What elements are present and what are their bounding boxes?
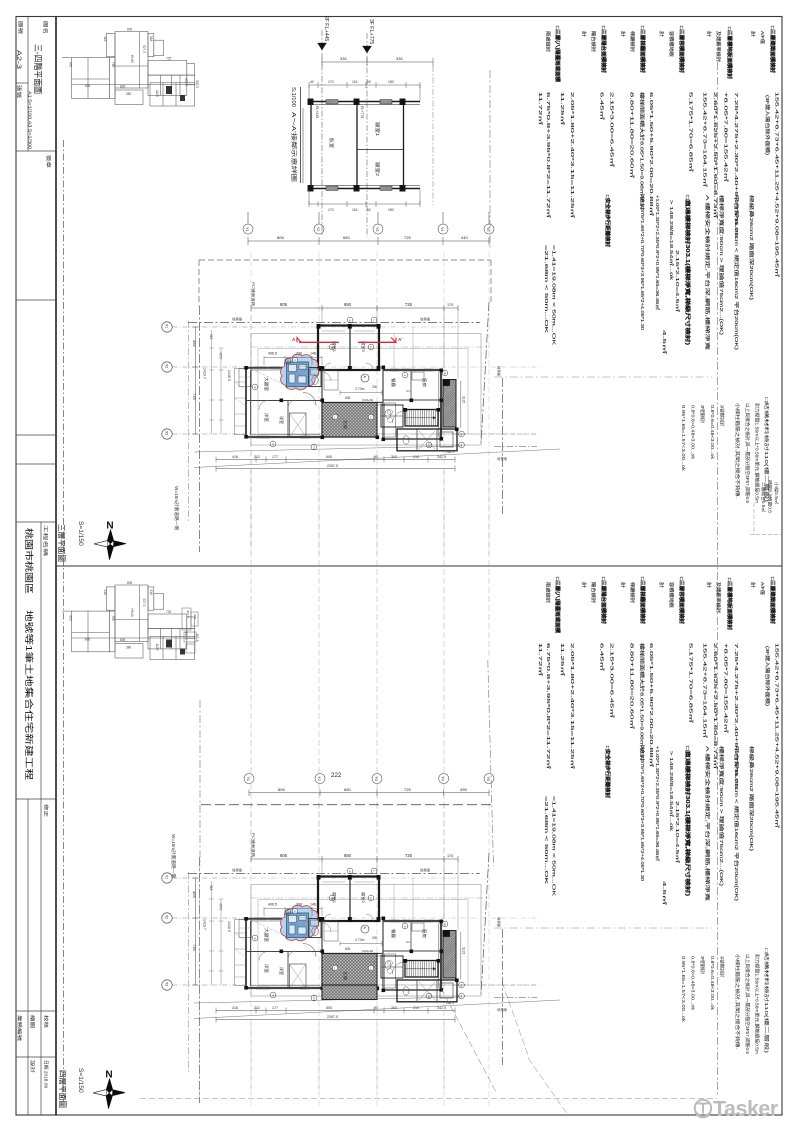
svg-text:1423.7: 1423.7 bbox=[203, 368, 207, 379]
svg-text:(3F建入陽台除外面積): (3F建入陽台除外面積) bbox=[764, 646, 771, 707]
svg-text:PC鋪面道路: PC鋪面道路 bbox=[251, 833, 256, 857]
svg-text:210: 210 bbox=[413, 1006, 419, 1010]
svg-text:212: 212 bbox=[254, 455, 260, 459]
svg-text:+1.00*1.30*2+2.35*0.9*2+0.95*1: +1.00*1.30*2+2.35*0.9*2+0.95*1.65=36.46㎡ bbox=[655, 195, 661, 311]
svg-text:計: 計 bbox=[581, 31, 588, 38]
svg-text:餐廳: 餐廳 bbox=[390, 929, 397, 939]
svg-text:6.45㎡: 6.45㎡ bbox=[600, 92, 606, 122]
svg-text:繪圖: 繪圖 bbox=[29, 1015, 36, 1029]
svg-text:210: 210 bbox=[413, 455, 419, 459]
svg-text:Y3: Y3 bbox=[375, 227, 379, 231]
svg-text:3F結構柱檢討: 3F結構柱檢討 bbox=[719, 405, 726, 426]
svg-text:玄關: 玄關 bbox=[343, 971, 348, 981]
svg-text:155.42+8.73=164.15㎡: 155.42+8.73=164.15㎡ bbox=[703, 92, 709, 189]
svg-text:(3F建入陽台除外面積): (3F建入陽台除外面積) bbox=[764, 95, 771, 156]
svg-text:11.72㎡: 11.72㎡ bbox=[538, 92, 544, 127]
svg-text:地界線: 地界線 bbox=[497, 456, 508, 461]
svg-text:=21.68m < 50m...OK: =21.68m < 50m...OK bbox=[544, 245, 549, 333]
svg-text:梯間0.9帷幕0.5: 梯間0.9帷幕0.5 bbox=[767, 480, 774, 514]
svg-text:735: 735 bbox=[192, 944, 197, 951]
svg-text:以上與接合之檢討,與一層部分臨空3F57,鋼筋0.5: 以上與接合之檢討,與一層部分臨空3F57,鋼筋0.5 bbox=[744, 954, 751, 1055]
svg-text:餐廳: 餐廳 bbox=[390, 378, 397, 388]
svg-text:容積樓地板: 容積樓地板 bbox=[668, 582, 675, 609]
svg-text:□三層容積面積檢討: □三層容積面積檢討 bbox=[678, 26, 685, 73]
svg-text:工程名稱: 工程名稱 bbox=[42, 525, 49, 556]
svg-text:6.45㎡: 6.45㎡ bbox=[600, 643, 606, 673]
svg-text:6.75*0.8+3.95*0.8*2=11.72㎡: 6.75*0.8+3.95*0.8*2=11.72㎡ bbox=[546, 92, 552, 220]
svg-text:805: 805 bbox=[278, 787, 285, 792]
svg-text:寢室1: 寢室1 bbox=[374, 122, 381, 137]
svg-text:Y2: Y2 bbox=[316, 227, 320, 231]
svg-text:雨遮檢討: 雨遮檢討 bbox=[545, 582, 552, 604]
svg-text:及建蔽率檢討: 及建蔽率檢討 bbox=[715, 31, 722, 63]
svg-text:155.42+8.73=164.15㎡: 155.42+8.73=164.15㎡ bbox=[703, 643, 709, 740]
svg-text:3115: 3115 bbox=[462, 396, 466, 403]
svg-text:W=15m計劃道路—側: W=15m計劃道路—側 bbox=[173, 486, 180, 531]
svg-text:0.8*0.6=0.48<3.00...ok: 0.8*0.6=0.48<3.00...ok bbox=[710, 956, 715, 1011]
svg-text:地界線: 地界線 bbox=[420, 868, 431, 873]
svg-text:地界線: 地界線 bbox=[497, 1007, 508, 1012]
svg-text:A 樓梯安全檢討規定,平台深,鋼筋,樓梯淨寬: A 樓梯安全檢討規定,平台深,鋼筋,樓梯淨寬 bbox=[704, 746, 711, 902]
svg-text:40: 40 bbox=[310, 80, 314, 84]
svg-text:170: 170 bbox=[328, 208, 334, 212]
svg-text:W=15m計劃道路—側: W=15m計劃道路—側 bbox=[170, 834, 177, 879]
svg-text:342.5: 342.5 bbox=[437, 1006, 446, 1010]
svg-text:地界線: 地界線 bbox=[497, 366, 502, 377]
svg-text:=1.41=19.08m < 50m...OK: =1.41=19.08m < 50m...OK bbox=[552, 796, 557, 896]
svg-text:805: 805 bbox=[277, 235, 284, 240]
svg-text:0.8*0.6=0.48<3.00...ok: 0.8*0.6=0.48<3.00...ok bbox=[710, 405, 715, 460]
svg-text:330: 330 bbox=[296, 352, 302, 356]
svg-text:605: 605 bbox=[345, 947, 351, 951]
svg-text:11.25㎡: 11.25㎡ bbox=[560, 92, 566, 127]
svg-text:圖名: 圖名 bbox=[42, 21, 49, 34]
svg-text:三層平面圖: 三層平面圖 bbox=[57, 524, 66, 562]
svg-text:725: 725 bbox=[405, 302, 413, 307]
svg-text:302.5: 302.5 bbox=[195, 80, 199, 88]
svg-text:805: 805 bbox=[280, 302, 288, 307]
svg-text:6.75*0.8+3.95*0.8*2=11.72㎡: 6.75*0.8+3.95*0.8*2=11.72㎡ bbox=[546, 643, 552, 771]
svg-text:162.5: 162.5 bbox=[446, 1001, 454, 1005]
svg-text:11.25㎡: 11.25㎡ bbox=[560, 643, 566, 678]
svg-text:5.175*1.70=6.85㎡: 5.175*1.70=6.85㎡ bbox=[689, 92, 695, 174]
svg-text:805: 805 bbox=[127, 28, 133, 32]
svg-text:0.95*1.65=1.57<3.00...ok: 0.95*1.65=1.57<3.00...ok bbox=[681, 405, 686, 472]
svg-text:330: 330 bbox=[296, 903, 302, 907]
svg-text:318: 318 bbox=[209, 334, 213, 340]
svg-text:AP 2.375*1.65*2+0.70*0.60*3+3.: AP 2.375*1.65*2+0.70*0.60*3+3.95*1.65*2+… bbox=[640, 195, 645, 331]
svg-text:11.72㎡: 11.72㎡ bbox=[538, 643, 544, 678]
svg-text:330: 330 bbox=[340, 56, 347, 61]
svg-text:Y1: Y1 bbox=[245, 227, 249, 231]
svg-text:177: 177 bbox=[272, 455, 278, 459]
svg-text:162.5: 162.5 bbox=[446, 450, 454, 454]
svg-text:耐力壁暨1.56m以上*0.56m單元,鋼筋續接0.5m: 耐力壁暨1.56m以上*0.56m單元,鋼筋續接0.5m bbox=[754, 954, 761, 1054]
svg-text:大寢室: 大寢室 bbox=[263, 928, 270, 942]
svg-text:90: 90 bbox=[374, 455, 378, 459]
svg-text:725: 725 bbox=[404, 235, 411, 240]
svg-text:計: 計 bbox=[620, 31, 627, 38]
svg-text:4075: 4075 bbox=[219, 903, 223, 910]
svg-text:洋室: 洋室 bbox=[263, 964, 270, 973]
svg-text:A/F值: A/F值 bbox=[759, 31, 766, 45]
svg-text:設計: 設計 bbox=[29, 1060, 36, 1074]
svg-text:90: 90 bbox=[374, 1006, 378, 1010]
svg-text:地號等1筆土地集合住宅新建工程: 地號等1筆土地集合住宅新建工程 bbox=[24, 610, 35, 781]
svg-text:S=1/150: S=1/150 bbox=[77, 521, 84, 546]
svg-text:校核: 校核 bbox=[43, 1015, 50, 1029]
svg-text:樓梯淨寬度:90cm > 理論值75cm2...(OK): 樓梯淨寬度:90cm > 理論值75cm2...(OK) bbox=[718, 195, 725, 336]
svg-text:2F F.L+445: 2F F.L+445 bbox=[323, 16, 329, 41]
svg-text:3F F.L+775: 3F F.L+775 bbox=[368, 19, 374, 44]
svg-text:3F壁量檢討: 3F壁量檢討 bbox=[699, 956, 706, 974]
svg-text:耐力壁暨1.56m以上*0.56m單元,鋼筋續接0.5m: 耐力壁暨1.56m以上*0.56m單元,鋼筋續接0.5m bbox=[754, 403, 761, 503]
svg-text:440: 440 bbox=[461, 235, 468, 240]
svg-text:臥室: 臥室 bbox=[328, 138, 335, 149]
svg-text:780: 780 bbox=[111, 62, 115, 68]
svg-text:X3: X3 bbox=[165, 982, 169, 986]
svg-text:洋室: 洋室 bbox=[263, 413, 270, 422]
svg-text:及建蔽率檢討: 及建蔽率檢討 bbox=[715, 582, 722, 614]
svg-text:> 148.28/8=18.54㎡...ok: > 148.28/8=18.54㎡...ok bbox=[669, 751, 675, 832]
svg-text:155.42+8.73+6.45+11.25+4.52+9.: 155.42+8.73+6.45+11.25+4.52+9.08=195.45㎡ bbox=[775, 643, 781, 829]
svg-text:S=1/150: S=1/150 bbox=[77, 1068, 84, 1093]
svg-text:2.15*3.00=6.45㎡: 2.15*3.00=6.45㎡ bbox=[610, 643, 616, 720]
svg-text:342.5: 342.5 bbox=[437, 455, 446, 459]
svg-text:650: 650 bbox=[69, 62, 73, 68]
svg-text:3F壁量檢討: 3F壁量檢討 bbox=[699, 405, 706, 423]
svg-text:A～A'接鄰示意詳圖: A～A'接鄰示意詳圖 bbox=[290, 112, 298, 182]
svg-text:簽章: 簽章 bbox=[45, 155, 52, 169]
svg-text:4.5㎡: 4.5㎡ bbox=[662, 881, 668, 907]
svg-text:□直通樓梯檢討303.1(樓梯淨寬,梯級尺寸檢討): □直通樓梯檢討303.1(樓梯淨寬,梯級尺寸檢討) bbox=[684, 195, 691, 345]
svg-text:407.5: 407.5 bbox=[184, 78, 188, 86]
svg-text:416: 416 bbox=[232, 1006, 238, 1010]
svg-text:梯級鼻26cm2 踏面深20cm(OK): 梯級鼻26cm2 踏面深20cm(OK) bbox=[748, 746, 755, 852]
svg-text:115: 115 bbox=[352, 208, 358, 212]
svg-text:HN40: HN40 bbox=[130, 55, 134, 63]
svg-text:小樑柱箍筋之檢討,其間之接合不夠傳.: 小樑柱箍筋之檢討,其間之接合不夠傳. bbox=[734, 403, 741, 498]
svg-text:張號: 張號 bbox=[16, 85, 23, 99]
svg-text:=21.68m < 50m...OK: =21.68m < 50m...OK bbox=[544, 796, 549, 884]
svg-text:□三層(八)陽臺雨遮面積: □三層(八)陽臺雨遮面積 bbox=[554, 26, 561, 83]
svg-text:650: 650 bbox=[344, 302, 352, 307]
svg-text:地界線: 地界線 bbox=[420, 317, 431, 322]
svg-text:8.80+11.80=20.60㎡: 8.80+11.80=20.60㎡ bbox=[630, 643, 636, 731]
svg-text:1FL: 1FL bbox=[406, 940, 411, 944]
svg-text:318: 318 bbox=[103, 36, 107, 42]
svg-text:Y3: Y3 bbox=[374, 777, 378, 781]
svg-text:□直通樓梯檢討303.1(樓梯淨寬,梯級尺寸檢討): □直通樓梯檢討303.1(樓梯淨寬,梯級尺寸檢討) bbox=[684, 746, 691, 896]
svg-text:AP 2.375*1.65*2+0.70*0.60*3+3.: AP 2.375*1.65*2+0.70*0.60*3+3.95*1.65*2+… bbox=[640, 746, 645, 882]
svg-text:小樑柱箍筋之檢討,其間之接合不夠傳.: 小樑柱箍筋之檢討,其間之接合不夠傳. bbox=[734, 954, 741, 1049]
svg-text:Y5: Y5 bbox=[486, 777, 490, 781]
svg-text:605: 605 bbox=[345, 396, 351, 400]
svg-text:陽台檢討: 陽台檢討 bbox=[590, 582, 597, 604]
svg-text:Y4: Y4 bbox=[440, 227, 444, 231]
svg-text:□結構材料檢討110(樓二層般): □結構材料檢討110(樓二層般) bbox=[763, 948, 770, 1054]
svg-text:155.42+8.73+6.45+11.25+4.52+9.: 155.42+8.73+6.45+11.25+4.52+9.08=195.45㎡ bbox=[775, 92, 781, 278]
svg-text:樓梯淨寬度:90cm > 理論值75cm2...(OK): 樓梯淨寬度:90cm > 理論值75cm2...(OK) bbox=[718, 746, 725, 887]
svg-text:寢室1: 寢室1 bbox=[332, 892, 337, 903]
svg-text:> 148.28/8=18.54㎡...ok: > 148.28/8=18.54㎡...ok bbox=[669, 200, 675, 281]
svg-text:3F結構柱檢討: 3F結構柱檢討 bbox=[719, 956, 726, 977]
svg-text:X1: X1 bbox=[165, 324, 169, 328]
svg-text:380: 380 bbox=[126, 92, 132, 96]
svg-text:計: 計 bbox=[658, 582, 665, 589]
svg-text:60: 60 bbox=[367, 208, 371, 212]
svg-text:洋室: 洋室 bbox=[279, 416, 284, 424]
svg-text:計: 計 bbox=[750, 582, 757, 589]
svg-text:平台深15.71cm < 規定值16cm2 平台20cm(O: 平台深15.71cm < 規定值16cm2 平台20cm(OK) bbox=[733, 195, 740, 351]
svg-text:梯級鼻26cm2 踏面深20cm(OK): 梯級鼻26cm2 踏面深20cm(OK) bbox=[748, 195, 755, 301]
svg-text:(100+60: (100+60 bbox=[362, 398, 373, 402]
svg-text:6.05*1.50+5.90*2.00=20.88㎡: 6.05*1.50+5.90*2.00=20.88㎡ bbox=[649, 92, 655, 218]
svg-text:927.5: 927.5 bbox=[142, 45, 146, 53]
svg-text:圖號: 圖號 bbox=[17, 21, 24, 35]
svg-text:計: 計 bbox=[581, 582, 588, 589]
svg-text:2287.5: 2287.5 bbox=[327, 1015, 338, 1019]
svg-text:4075: 4075 bbox=[219, 352, 223, 359]
svg-text:樓梯間面積大於8.05*1.50=9.08㎡檢討: 樓梯間面積大於8.05*1.50=9.08㎡檢討 bbox=[639, 643, 646, 762]
svg-text:+1.00*1.30*2+2.35*0.9*2+0.95*1: +1.00*1.30*2+2.35*0.9*2+0.95*1.65=36.46㎡ bbox=[655, 746, 661, 862]
svg-text:雨遮檢討: 雨遮檢討 bbox=[545, 31, 552, 53]
svg-text:1423.7: 1423.7 bbox=[203, 919, 207, 930]
svg-text:A/F值: A/F值 bbox=[759, 582, 766, 596]
svg-text:146.5: 146.5 bbox=[310, 352, 319, 356]
svg-text:Y1: Y1 bbox=[246, 777, 250, 781]
svg-text:300: 300 bbox=[391, 1006, 397, 1010]
svg-text:650: 650 bbox=[344, 853, 352, 858]
svg-text:1446.5: 1446.5 bbox=[227, 370, 231, 381]
svg-text:S:1/100: S:1/100 bbox=[290, 87, 296, 107]
svg-text:4.5㎡: 4.5㎡ bbox=[662, 330, 668, 356]
svg-text:□三層建築面積檢討: □三層建築面積檢討 bbox=[769, 26, 776, 73]
svg-text:□三層容積面積檢討: □三層容積面積檢討 bbox=[678, 577, 685, 624]
svg-text:X1: X1 bbox=[165, 875, 169, 879]
svg-text:地界線: 地界線 bbox=[232, 868, 243, 873]
svg-text:小樑0.5㎡: 小樑0.5㎡ bbox=[773, 482, 780, 505]
svg-text:170: 170 bbox=[447, 854, 453, 858]
svg-text:0.8*0.6=0.48<3.00...ok: 0.8*0.6=0.48<3.00...ok bbox=[691, 956, 696, 1011]
svg-text:梯廳檢討: 梯廳檢討 bbox=[629, 31, 636, 53]
svg-text:407.5: 407.5 bbox=[186, 610, 190, 618]
svg-text:□三層梯廳面積檢討: □三層梯廳面積檢討 bbox=[639, 26, 646, 73]
svg-text:□三層樓地板面積檢討: □三層樓地板面積檢討 bbox=[726, 27, 733, 79]
svg-text:330: 330 bbox=[396, 56, 403, 61]
svg-text:230: 230 bbox=[372, 385, 378, 389]
svg-text:修正: 修正 bbox=[43, 804, 50, 817]
svg-text:115: 115 bbox=[352, 80, 358, 84]
svg-text:170: 170 bbox=[447, 303, 453, 307]
svg-text:A': A' bbox=[398, 337, 402, 342]
svg-text:2287.5: 2287.5 bbox=[327, 464, 338, 468]
svg-text:四層平面圖: 四層平面圖 bbox=[58, 1070, 67, 1108]
svg-text:X2: X2 bbox=[165, 364, 169, 368]
svg-text:三-四階平面圖: 三-四階平面圖 bbox=[33, 44, 43, 94]
svg-text:2.05*1.80+2.40*3.15=11.25㎡: 2.05*1.80+2.40*3.15=11.25㎡ bbox=[570, 643, 576, 771]
svg-text:□安全梯步行距離檢討: □安全梯步行距離檢討 bbox=[604, 746, 611, 798]
svg-text:2.15*3.00=6.45㎡: 2.15*3.00=6.45㎡ bbox=[610, 92, 616, 169]
svg-text:大寢室: 大寢室 bbox=[263, 377, 270, 391]
svg-text:406.5: 406.5 bbox=[268, 352, 277, 356]
svg-text:60: 60 bbox=[367, 80, 371, 84]
svg-text:650: 650 bbox=[343, 235, 350, 240]
svg-text:洋室: 洋室 bbox=[279, 967, 284, 975]
svg-text:□三層樓地板面積檢討: □三層樓地板面積檢討 bbox=[726, 578, 733, 630]
svg-text:205: 205 bbox=[193, 614, 197, 619]
svg-text:PC鋪面道路: PC鋪面道路 bbox=[251, 282, 256, 306]
svg-text:桃園市桃園區: 桃園市桃園區 bbox=[24, 528, 35, 595]
svg-text:650: 650 bbox=[344, 787, 351, 792]
svg-text:FL+445: FL+445 bbox=[315, 106, 319, 118]
svg-text:3115: 3115 bbox=[462, 947, 466, 954]
svg-text:計: 計 bbox=[750, 31, 757, 38]
svg-text:725: 725 bbox=[404, 787, 411, 792]
svg-text:+8.05*7.80=155.42㎡: +8.05*7.80=155.42㎡ bbox=[724, 92, 730, 184]
svg-text:Y5: Y5 bbox=[486, 227, 490, 231]
svg-text:Y4: Y4 bbox=[441, 777, 445, 781]
svg-text:1446.5: 1446.5 bbox=[227, 921, 231, 932]
svg-text:X2: X2 bbox=[165, 915, 169, 919]
svg-text:FL+775: FL+775 bbox=[360, 106, 364, 118]
svg-text:□三層陽台面積檢討: □三層陽台面積檢討 bbox=[600, 577, 607, 624]
svg-text:計: 計 bbox=[706, 582, 713, 589]
svg-text:5.175*1.70=6.85㎡: 5.175*1.70=6.85㎡ bbox=[689, 643, 695, 725]
svg-text:170: 170 bbox=[328, 80, 334, 84]
svg-text:725: 725 bbox=[166, 57, 172, 61]
svg-text:2.60*1.625+2.50*1.60=8.73㎡: 2.60*1.625+2.50*1.60=8.73㎡ bbox=[713, 92, 719, 220]
svg-text:容積樓地板: 容積樓地板 bbox=[668, 31, 675, 58]
svg-text:計: 計 bbox=[620, 582, 627, 589]
svg-text:605: 605 bbox=[326, 455, 332, 459]
svg-text:以上與接合之檢討,與一層部分臨空3F57,鋼筋0.5: 以上與接合之檢討,與一層部分臨空3F57,鋼筋0.5 bbox=[744, 403, 751, 504]
svg-text:寢室2: 寢室2 bbox=[361, 892, 366, 903]
svg-text:735: 735 bbox=[192, 393, 197, 400]
svg-text:計: 計 bbox=[706, 31, 713, 38]
svg-text:1FL: 1FL bbox=[406, 389, 411, 393]
svg-text:0.95*1.65=1.57<3.00...ok: 0.95*1.65=1.57<3.00...ok bbox=[681, 956, 686, 1023]
svg-text:A2-3: A2-3 bbox=[15, 50, 22, 69]
svg-text:725: 725 bbox=[405, 853, 413, 858]
svg-text:495: 495 bbox=[460, 787, 467, 792]
svg-text:□三層陽台面積檢討: □三層陽台面積檢討 bbox=[600, 26, 607, 73]
svg-text:177: 177 bbox=[272, 1006, 278, 1010]
svg-text:陽台檢討: 陽台檢討 bbox=[590, 31, 597, 53]
svg-text:318: 318 bbox=[149, 36, 153, 42]
svg-text:寢室2: 寢室2 bbox=[374, 162, 381, 177]
svg-text:146.5: 146.5 bbox=[310, 903, 319, 907]
svg-text:318: 318 bbox=[209, 885, 213, 891]
svg-text:2.60*1.625+2.50*1.60=8.73㎡: 2.60*1.625+2.50*1.60=8.73㎡ bbox=[713, 643, 719, 771]
svg-text:605: 605 bbox=[326, 1006, 332, 1010]
svg-text:X3: X3 bbox=[165, 431, 169, 435]
svg-text:6.05*1.50+5.90*2.00=20.88㎡: 6.05*1.50+5.90*2.00=20.88㎡ bbox=[649, 643, 655, 769]
svg-text:805: 805 bbox=[120, 85, 126, 89]
svg-text:二層陽台0.5㎡: 二層陽台0.5㎡ bbox=[760, 482, 767, 513]
svg-text:梯廳檢討: 梯廳檢討 bbox=[629, 582, 636, 604]
svg-text:玄關: 玄關 bbox=[343, 420, 348, 430]
svg-text:□三層建築面積檢討: □三層建築面積檢討 bbox=[769, 577, 776, 624]
svg-text:2.70m: 2.70m bbox=[355, 938, 365, 942]
svg-text:416: 416 bbox=[232, 455, 238, 459]
svg-text:廚房: 廚房 bbox=[421, 929, 428, 938]
svg-text:業務編號: 業務編號 bbox=[16, 1015, 23, 1042]
svg-text:A 樓梯安全檢討規定,平台深,鋼筋,樓梯淨寬: A 樓梯安全檢討規定,平台深,鋼筋,樓梯淨寬 bbox=[704, 195, 711, 351]
svg-text:455: 455 bbox=[192, 891, 197, 898]
svg-text:222: 222 bbox=[331, 772, 342, 779]
svg-text:2.05*1.80+2.40*3.15=11.25㎡: 2.05*1.80+2.40*3.15=11.25㎡ bbox=[570, 92, 576, 220]
svg-text:(100+60: (100+60 bbox=[362, 949, 373, 953]
svg-text:地界線: 地界線 bbox=[497, 917, 502, 928]
svg-text:□三層(八)陽臺雨遮面積: □三層(八)陽臺雨遮面積 bbox=[554, 577, 561, 634]
svg-text:212: 212 bbox=[254, 1006, 260, 1010]
svg-text:805: 805 bbox=[85, 84, 91, 88]
svg-text:平台深15.71cm < 規定值16cm2 平台20cm(O: 平台深15.71cm < 規定值16cm2 平台20cm(OK) bbox=[733, 746, 740, 902]
svg-text:230: 230 bbox=[372, 936, 378, 940]
svg-text:N: N bbox=[105, 1070, 112, 1081]
svg-text:180: 180 bbox=[388, 80, 394, 84]
svg-text:2.15*2.10=4.5㎡: 2.15*2.10=4.5㎡ bbox=[675, 250, 681, 313]
svg-text:地界線: 地界線 bbox=[232, 317, 243, 322]
svg-text:406.5: 406.5 bbox=[268, 903, 277, 907]
svg-text:+8.05*7.80=155.42㎡: +8.05*7.80=155.42㎡ bbox=[724, 643, 730, 735]
svg-text:8.80+11.80=20.60㎡: 8.80+11.80=20.60㎡ bbox=[630, 92, 636, 180]
svg-text:廚房: 廚房 bbox=[421, 378, 428, 387]
svg-text:0.8*0.6=0.48<3.00...ok: 0.8*0.6=0.48<3.00...ok bbox=[691, 405, 696, 460]
svg-text:□安全梯步行距離檢討: □安全梯步行距離檢討 bbox=[604, 195, 611, 247]
svg-text:=1.41=19.08m < 50m...OK: =1.41=19.08m < 50m...OK bbox=[552, 245, 557, 345]
svg-text:□三層梯廳面積檢討: □三層梯廳面積檢討 bbox=[639, 577, 646, 624]
svg-text:2.15*2.10=4.5㎡: 2.15*2.10=4.5㎡ bbox=[675, 801, 681, 864]
svg-text:A1 S=1/150,A3 S=1/300: A1 S=1/150,A3 S=1/300 bbox=[28, 91, 33, 150]
svg-text:計: 計 bbox=[658, 31, 665, 38]
svg-text:N: N bbox=[106, 521, 113, 532]
svg-text:1125: 1125 bbox=[155, 90, 159, 97]
svg-text:805: 805 bbox=[280, 853, 288, 858]
svg-text:300: 300 bbox=[391, 455, 397, 459]
svg-text:180: 180 bbox=[388, 208, 394, 212]
svg-text:455: 455 bbox=[192, 340, 197, 347]
svg-text:Tasker: Tasker bbox=[713, 1097, 779, 1121]
svg-text:2.70m: 2.70m bbox=[355, 387, 365, 391]
svg-text:Y2: Y2 bbox=[317, 777, 321, 781]
svg-text:樓梯間面積大於8.05*1.50=9.08㎡檢討: 樓梯間面積大於8.05*1.50=9.08㎡檢討 bbox=[639, 92, 646, 211]
